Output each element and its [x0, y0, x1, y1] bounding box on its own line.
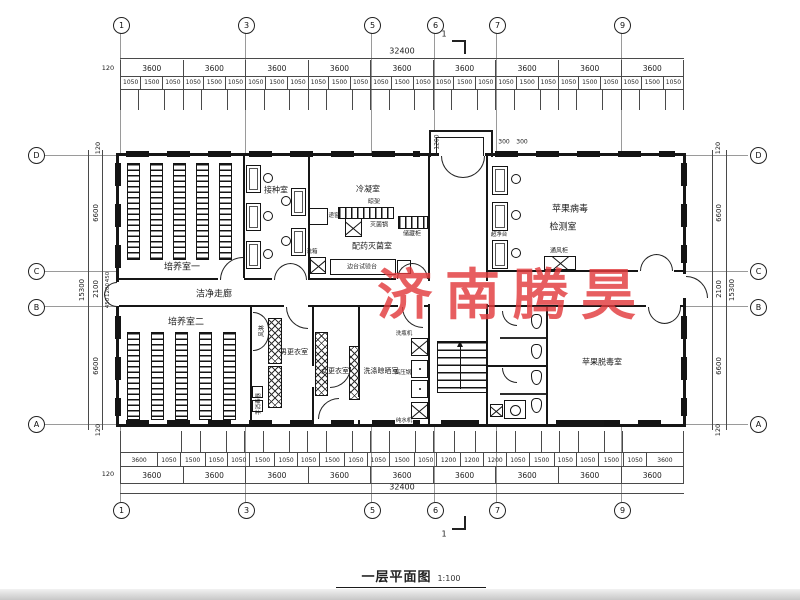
door-arc [274, 263, 291, 280]
clean-bench [291, 228, 306, 256]
dim-line [712, 150, 713, 430]
section-label-bottom: 1 [441, 530, 446, 539]
grid-bubble-top: 7 [489, 17, 506, 34]
door-arc [330, 367, 351, 388]
dim-tick [120, 431, 181, 452]
dim-line [88, 150, 89, 430]
grid-bubble-bottom: 6 [427, 502, 444, 519]
window-bar [441, 420, 479, 426]
dim-tick [454, 431, 475, 452]
dim-value: 3600 [183, 467, 246, 483]
dim-tick [200, 431, 226, 452]
dim-line [726, 150, 727, 430]
dim-tick [264, 89, 290, 110]
dim-value: 1500 [516, 76, 538, 89]
dim-value: 1050 [621, 76, 641, 89]
porch-dim-b: 300 [516, 139, 527, 146]
dim-bottom-bays: 360036003600360036003600360036003600 [120, 466, 684, 484]
wall [312, 306, 314, 424]
dim-right-mid: 2100 [715, 280, 723, 298]
shelving-rack [219, 163, 232, 260]
dim-tick [540, 89, 558, 110]
dim-line [102, 150, 103, 430]
stair-arrow-head [457, 341, 463, 347]
dim-line [120, 58, 684, 59]
dim-right-wall-top: 120 [714, 142, 722, 154]
dim-value: 3600 [245, 60, 308, 76]
dim-tick [201, 89, 227, 110]
dim-tick [621, 89, 639, 110]
grid-bubble-bottom: 3 [238, 502, 255, 519]
dim-value: 1050 [120, 76, 140, 89]
drawing-title: 一层平面图 1:100 [336, 566, 486, 591]
locker-cabinet [268, 318, 282, 364]
window-strip [681, 163, 687, 263]
watermark-text: 济南腾昊 [377, 250, 649, 330]
wash-box [310, 257, 326, 274]
dim-value: 1500 [389, 453, 414, 467]
dim-value: 3600 [183, 60, 246, 76]
page-bottom-strip [0, 589, 800, 600]
dim-tick [451, 89, 477, 110]
bottle-washer [411, 338, 428, 356]
dim-value: 1050 [274, 453, 296, 467]
dim-value: 1050 [245, 76, 265, 89]
dim-value: 1050 [183, 76, 203, 89]
door-arc [664, 307, 681, 324]
dim-value: 3600 [646, 453, 684, 467]
dim-right-upper: 6600 [715, 204, 723, 222]
equip-label-rack: 晾架 [368, 197, 380, 206]
dim-value: 1050 [495, 76, 515, 89]
dim-bottom-subs: 3600105015001050105015001050105015001050… [120, 452, 684, 467]
dim-tick [307, 431, 326, 452]
door-arc [502, 368, 517, 383]
autoclave-box [411, 380, 428, 398]
dim-value: 3600 [120, 467, 183, 483]
shelving-rack [175, 332, 188, 420]
dim-value: 1050 [287, 76, 307, 89]
dim-value: 1200 [436, 453, 459, 467]
shelving-rack [199, 332, 212, 420]
dim-value: 1500 [180, 453, 205, 467]
shelving-rack [127, 332, 140, 420]
grid-line [686, 306, 748, 307]
dim-value: 1500 [203, 76, 225, 89]
shelving-rack [127, 163, 140, 260]
room-label-corridor: 洁净走廊 [196, 287, 232, 300]
dim-tick [475, 431, 496, 452]
stool-icon [263, 249, 273, 259]
dim-tick [541, 431, 560, 452]
dim-value: 1050 [225, 76, 245, 89]
equip-label-air-shower: 风淋 [257, 325, 266, 337]
grid-bubble-right: A [750, 416, 767, 433]
locker-cabinet [315, 332, 328, 396]
equip-label-cabinet: 储藏柜 [403, 229, 421, 238]
equip-label-autoclave: 高压锅 [395, 368, 412, 376]
dim-value: 1050 [370, 76, 390, 89]
dim-tick [515, 431, 541, 452]
stall-partition [500, 337, 546, 339]
window-strip [495, 151, 675, 157]
grid-bubble-left: D [28, 147, 45, 164]
room-label-condensation: 冷凝室 [356, 184, 380, 195]
floor-plan-sheet: 1 3 5 6 7 9 1 3 5 6 7 9 D C B A D C B A … [0, 0, 800, 600]
clean-bench [246, 241, 261, 269]
stool-icon [511, 174, 521, 184]
dim-value: 1050 [157, 453, 179, 467]
room-label-virus-line2: 检测室 [549, 220, 576, 233]
section-label-top: 1 [441, 30, 446, 39]
grid-bubble-left: A [28, 416, 45, 433]
dim-value: 3600 [433, 60, 496, 76]
dim-value: 1050 [367, 453, 389, 467]
dim-tick [477, 89, 495, 110]
dim-value: 1500 [319, 453, 344, 467]
equip-label-sterilizer: 灭菌锅 [370, 220, 388, 229]
stool-icon [281, 236, 291, 246]
dim-value: 3600 [558, 467, 621, 483]
room-label-men: 男更衣室 [280, 347, 308, 357]
grid-bubble-left: B [28, 299, 45, 316]
dim-tick [602, 89, 620, 110]
grid-bubble-bottom: 5 [364, 502, 381, 519]
dim-value: 1500 [249, 453, 274, 467]
pass-window-box [309, 208, 328, 225]
dim-bottom-total: 32400 [389, 483, 414, 492]
porch-dim-depth: 1200 [434, 134, 441, 149]
window-strip [681, 316, 687, 416]
dim-left-total: 15300 [78, 279, 86, 301]
toilet-icon [531, 370, 542, 385]
porch-inner [436, 137, 484, 156]
grid-line [44, 424, 118, 425]
dim-right-total: 15300 [728, 279, 736, 301]
door-arc [686, 276, 708, 298]
toilet-icon [531, 344, 542, 359]
dim-top-bays: 360036003600360036003600360036003600 [120, 60, 684, 77]
stair-arrow [460, 347, 461, 389]
dim-tick [578, 431, 604, 452]
dim-value: 1200 [483, 453, 506, 467]
dim-value: 1050 [433, 76, 453, 89]
grid-bubble-top: 9 [614, 17, 631, 34]
locker-cabinet [268, 366, 282, 408]
grid-bubble-left: C [28, 263, 45, 280]
dim-left-wall-top: 120 [94, 142, 102, 154]
dim-value: 1050 [506, 453, 528, 467]
equip-label-clean-bench: 超净台 [491, 230, 508, 238]
equip-label-side-bench: 边台试验台 [347, 262, 377, 271]
grid-line [686, 155, 748, 156]
dim-tick [226, 431, 245, 452]
dim-tick [576, 89, 602, 110]
dim-tick [370, 431, 389, 452]
dim-value: 3600 [495, 60, 558, 76]
window-strip [115, 163, 121, 269]
dim-right-wall-bottom: 120 [714, 424, 722, 436]
porch-dim-a: 300 [498, 139, 509, 146]
dim-tick [604, 431, 623, 452]
dim-value: 1050 [600, 76, 620, 89]
clean-bench [492, 202, 508, 231]
shelving-rack [151, 332, 164, 420]
door-arc [463, 156, 485, 178]
dim-left-mid: 2100 [92, 280, 100, 298]
dim-value: 1050 [623, 453, 645, 467]
dim-top-ticks [120, 89, 684, 110]
room-label-washing: 洗涤晾晒室 [364, 366, 399, 376]
autoclave-box [411, 360, 428, 378]
dim-tick [263, 431, 289, 452]
dim-tick [496, 431, 515, 452]
dim-tick [326, 431, 352, 452]
dim-value: 1500 [140, 76, 162, 89]
dim-tick [558, 89, 576, 110]
grid-bubble-top: 5 [364, 17, 381, 34]
dim-value: 1050 [205, 453, 227, 467]
grid-bubble-bottom: 1 [113, 502, 130, 519]
stool-icon [511, 210, 521, 220]
grid-line [686, 271, 748, 272]
door-arc [656, 254, 673, 271]
wash-box [490, 404, 503, 417]
dim-tick [415, 431, 434, 452]
dim-left-450a: 450 [105, 272, 111, 283]
room-label-virus-line1: 苹果病毒 [552, 202, 588, 215]
sink-icon [504, 400, 526, 419]
dim-tick [352, 431, 371, 452]
dim-tick [164, 89, 182, 110]
door-arc [318, 398, 339, 419]
stool-icon [263, 173, 273, 183]
grid-bubble-bottom: 9 [614, 502, 631, 519]
stall-partition [500, 393, 546, 395]
dim-top-total: 32400 [389, 47, 414, 56]
room-label-inoculation: 接种室 [264, 185, 288, 196]
dim-top-wall: 120 [102, 64, 114, 72]
grid-bubble-right: B [750, 299, 767, 316]
door-gap [312, 366, 314, 387]
equip-label-water-machine: 纯水机 [396, 416, 413, 424]
water-machine [411, 402, 428, 419]
dim-value: 3600 [370, 467, 433, 483]
window-strip [115, 316, 121, 416]
dim-value: 3600 [558, 60, 621, 76]
dim-value: 1050 [227, 453, 249, 467]
window-strip [126, 420, 420, 426]
dim-tick [414, 89, 432, 110]
wall [488, 365, 546, 367]
dim-value: 1500 [453, 76, 475, 89]
dim-tick [639, 89, 665, 110]
dim-bottom-wall: 120 [102, 470, 114, 478]
dim-value: 1050 [297, 453, 319, 467]
door-gap [358, 397, 360, 420]
dim-value: 3600 [621, 467, 685, 483]
dim-tick [433, 431, 454, 452]
storage-cabinet [398, 216, 428, 229]
dim-tick [559, 431, 578, 452]
shelving-rack [173, 163, 186, 260]
grid-bubble-top: 3 [238, 17, 255, 34]
door-arc [648, 307, 665, 324]
equip-label-bottle-washer: 洗瓶机 [396, 329, 413, 337]
dim-value: 1500 [265, 76, 287, 89]
dim-tick [665, 89, 684, 110]
toilet-icon [531, 398, 542, 413]
dim-bottom-ticks [120, 431, 684, 452]
dim-value: 1500 [578, 76, 600, 89]
dim-value: 3600 [370, 60, 433, 76]
shelving-rack [196, 163, 209, 260]
equip-label-hand-sanitizer: 手消毒器 [254, 393, 262, 415]
dim-tick [245, 89, 263, 110]
dim-value: 3600 [120, 60, 183, 76]
dim-top-subs: 1050150010501050150010501050150010501050… [120, 76, 684, 90]
dim-tick [227, 89, 245, 110]
room-label-culture2: 培养室二 [168, 315, 204, 328]
clean-bench [492, 166, 508, 195]
grid-bubble-bottom: 7 [489, 502, 506, 519]
sterilizer-box [345, 218, 362, 237]
dim-value: 3600 [308, 60, 371, 76]
dim-right-lower: 6600 [715, 357, 723, 375]
dim-value: 1050 [344, 453, 366, 467]
door-arc [290, 263, 307, 280]
dim-tick [495, 89, 513, 110]
door-arc [220, 257, 243, 280]
wall [243, 156, 245, 280]
dim-tick [120, 89, 138, 110]
dim-tick [244, 431, 263, 452]
grid-line [44, 155, 118, 156]
room-label-culture1: 培养室一 [164, 260, 200, 273]
dim-tick [138, 89, 164, 110]
section-mark-bottom [452, 516, 466, 530]
dim-tick [622, 431, 684, 452]
grid-bubble-right: C [750, 263, 767, 280]
dim-tick [370, 89, 388, 110]
dim-tick [433, 89, 451, 110]
door-arc [286, 307, 308, 329]
dim-left-upper: 6600 [92, 204, 100, 222]
dim-tick [183, 89, 201, 110]
dim-tick [181, 431, 200, 452]
dim-value: 1050 [558, 76, 578, 89]
shelving-rack [223, 332, 236, 420]
door-arc [441, 156, 463, 178]
dim-line [120, 493, 684, 494]
clean-bench [291, 188, 306, 216]
dim-value: 1050 [663, 76, 684, 89]
staircase [437, 341, 487, 393]
dim-left-wall-bottom: 120 [94, 424, 102, 436]
dim-value: 3600 [308, 467, 371, 483]
window-bar [570, 420, 604, 426]
dim-tick [389, 89, 415, 110]
clean-bench [246, 165, 261, 193]
dim-value: 1050 [308, 76, 328, 89]
dim-value: 1050 [162, 76, 182, 89]
grid-bubble-top: 1 [113, 17, 130, 34]
dim-value: 3600 [433, 467, 496, 483]
shelving-rack [150, 163, 163, 260]
drawing-scale: 1:100 [437, 574, 460, 583]
equip-label-wash-box: 洗箱 [306, 247, 317, 255]
dim-value: 3600 [245, 467, 308, 483]
dim-value: 1050 [475, 76, 495, 89]
dim-tick [352, 89, 370, 110]
dim-value: 1500 [641, 76, 663, 89]
locker-cabinet [349, 346, 360, 400]
dim-value: 1500 [598, 453, 623, 467]
dim-tick [389, 431, 415, 452]
dim-value: 1200 [460, 453, 483, 467]
dim-tick [514, 89, 540, 110]
dim-value: 3600 [120, 453, 157, 467]
dim-value: 1050 [350, 76, 370, 89]
dim-tick [289, 431, 308, 452]
dim-value: 1050 [554, 453, 576, 467]
dim-value: 1500 [529, 453, 554, 467]
dim-tick [326, 89, 352, 110]
dim-value: 3600 [495, 467, 558, 483]
dim-value: 1050 [413, 76, 433, 89]
dim-value: 1050 [538, 76, 558, 89]
stool-icon [263, 211, 273, 221]
dim-value: 1500 [391, 76, 413, 89]
dim-value: 1050 [414, 453, 436, 467]
dim-tick [289, 89, 307, 110]
room-label-detox: 苹果脱毒室 [582, 357, 622, 368]
window-strip [126, 151, 420, 157]
dim-value: 1050 [576, 453, 598, 467]
dim-value: 1500 [328, 76, 350, 89]
section-mark-top [452, 40, 466, 54]
clean-bench [246, 203, 261, 231]
dim-value: 3600 [621, 60, 685, 76]
stool-icon [281, 196, 291, 206]
dim-tick [308, 89, 326, 110]
drawing-title-text: 一层平面图 [361, 566, 431, 585]
grid-bubble-right: D [750, 147, 767, 164]
dim-left-lower: 6600 [92, 357, 100, 375]
